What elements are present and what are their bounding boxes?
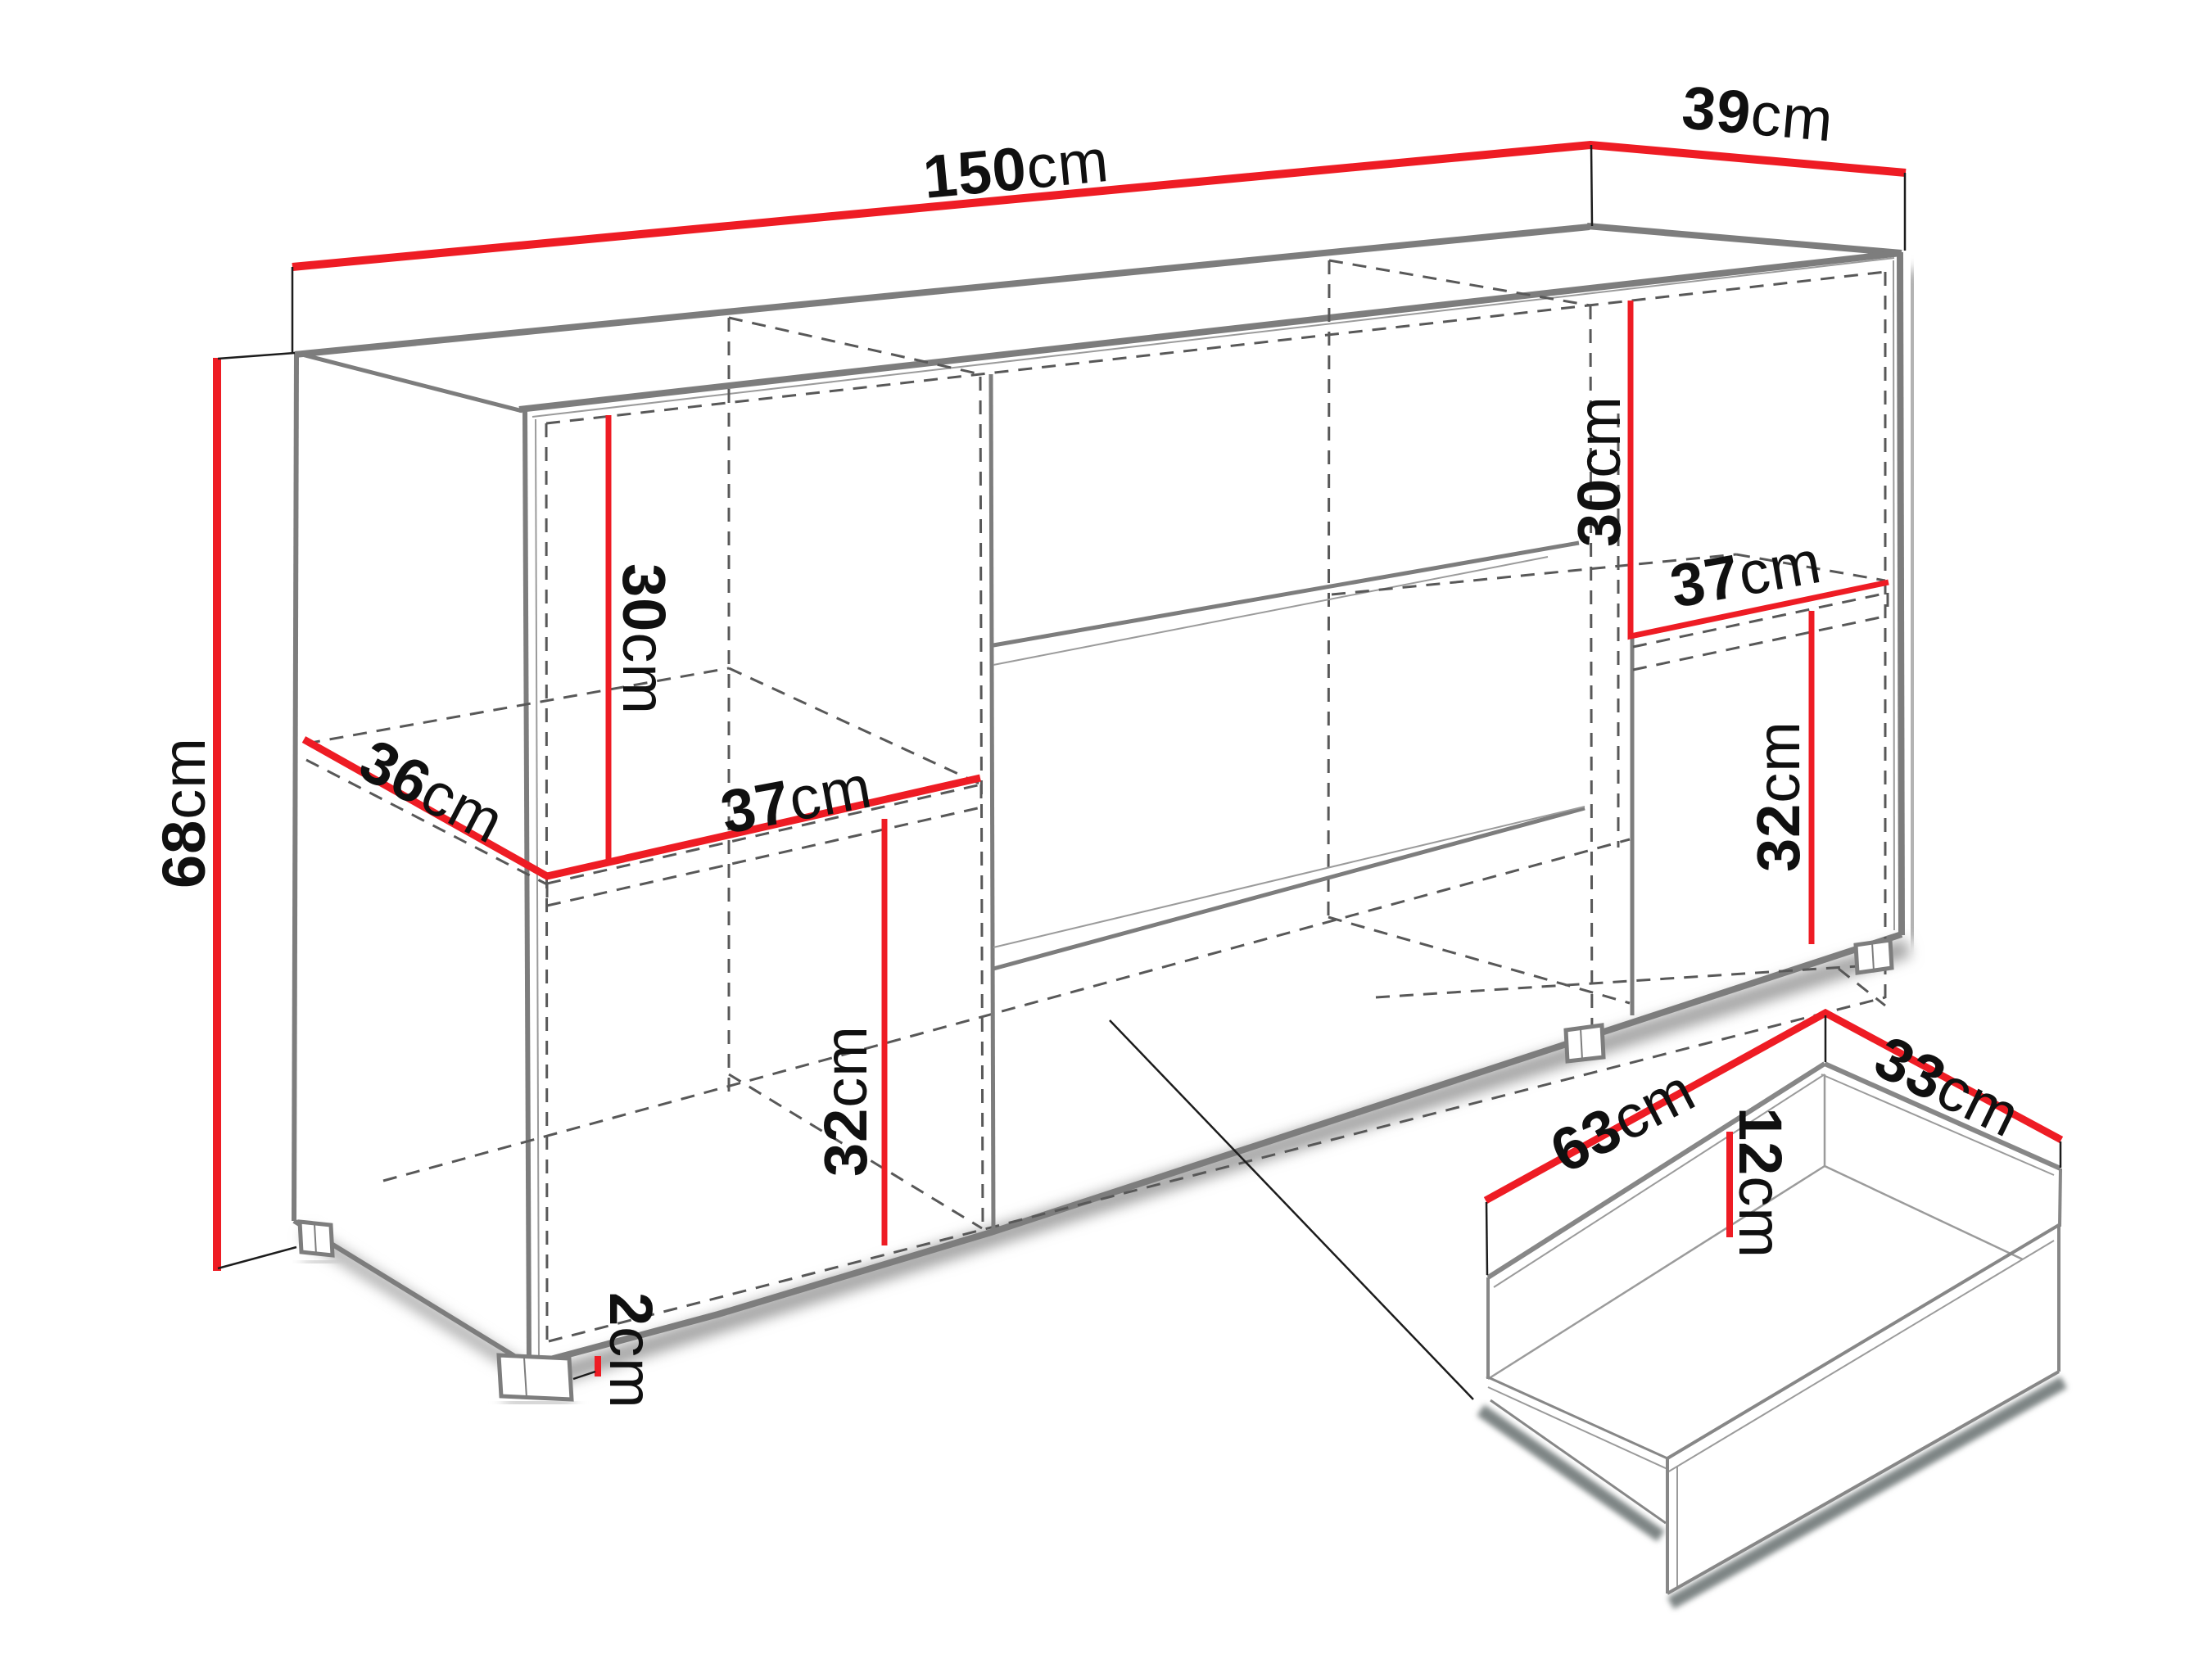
svg-text:32cm: 32cm: [812, 1025, 880, 1177]
svg-text:68cm: 68cm: [150, 737, 218, 888]
svg-text:12cm: 12cm: [1726, 1107, 1794, 1259]
svg-text:2cm: 2cm: [597, 1292, 665, 1409]
svg-text:32cm: 32cm: [1744, 721, 1812, 872]
svg-text:39cm: 39cm: [1680, 73, 1837, 154]
svg-text:30cm: 30cm: [610, 563, 678, 715]
svg-text:30cm: 30cm: [1565, 396, 1633, 547]
